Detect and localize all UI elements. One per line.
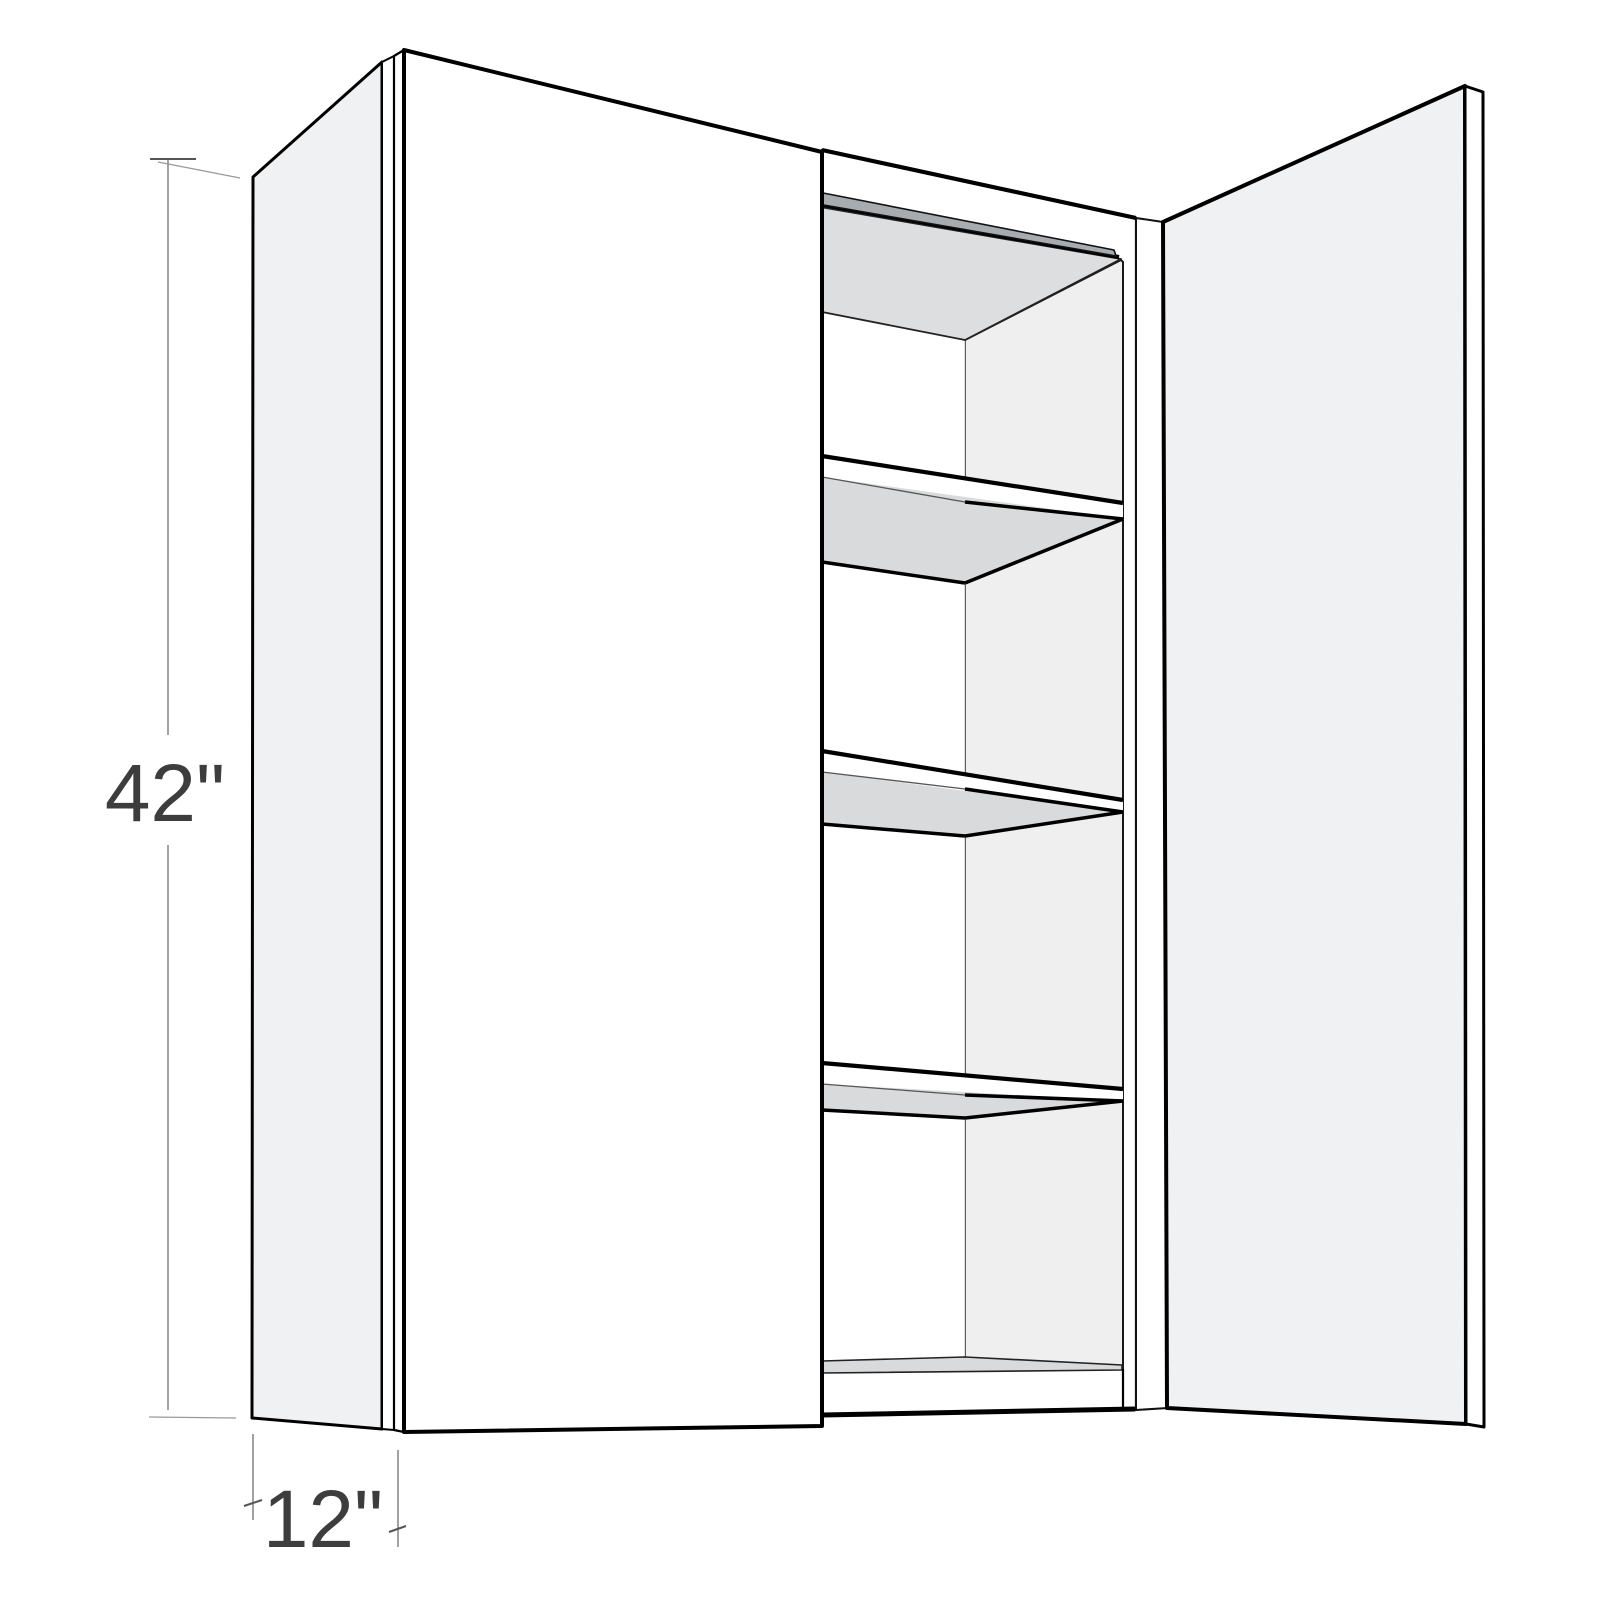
wall-cabinet-illustration: 42" 12" (0, 0, 1600, 1600)
height-dimension-top-leader (158, 162, 240, 178)
cabinet-interior (818, 150, 1168, 1415)
right-door-face (1163, 86, 1466, 1424)
depth-dimension-label: 12" (263, 1474, 383, 1565)
right-door-open (1163, 86, 1484, 1427)
right-door-edge (1465, 86, 1484, 1427)
height-dimension-label: 42" (105, 748, 225, 839)
height-dimension-bottom-leader (149, 1417, 236, 1418)
depth-dimension: 12" (244, 1434, 406, 1565)
cabinet-dimension-diagram: 42" 12" (0, 0, 1600, 1600)
left-door-edge-strip (382, 56, 394, 1430)
height-dimension: 42" (105, 159, 240, 1418)
left-door-closed (404, 50, 822, 1432)
cabinet-left-side (252, 50, 822, 1432)
cabinet-left-side-panel (252, 62, 382, 1429)
